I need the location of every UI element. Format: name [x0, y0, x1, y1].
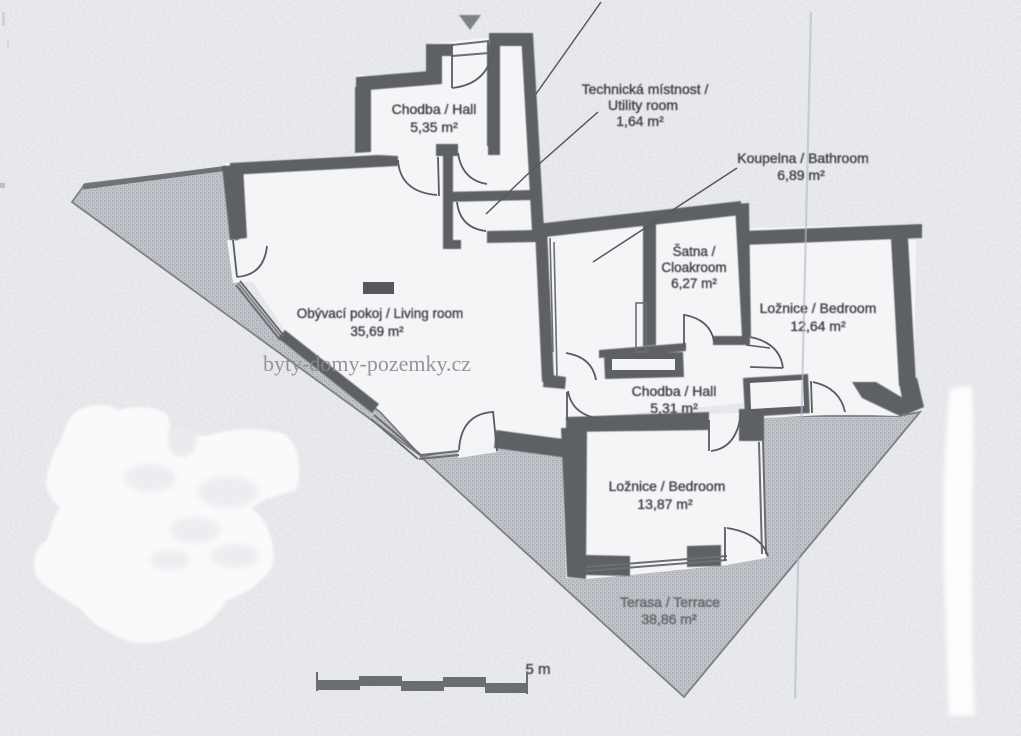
svg-text:5,31 m²: 5,31 m²: [650, 400, 698, 416]
svg-text:5 m: 5 m: [525, 661, 550, 678]
svg-text:Terasa / Terrace: Terasa / Terrace: [620, 594, 720, 610]
svg-text:13,87 m²: 13,87 m²: [637, 496, 693, 512]
svg-text:35,69 m²: 35,69 m²: [350, 324, 404, 339]
svg-text:6,27 m²: 6,27 m²: [671, 276, 717, 291]
svg-text:Cloakroom: Cloakroom: [661, 260, 726, 275]
svg-text:Ložnice / Bedroom: Ložnice / Bedroom: [760, 300, 877, 316]
svg-text:Ložnice / Bedroom: Ložnice / Bedroom: [609, 478, 726, 494]
svg-text:byty-domy-pozemky.cz: byty-domy-pozemky.cz: [263, 351, 471, 376]
svg-text:38,86 m²: 38,86 m²: [641, 611, 697, 627]
svg-text:12,64 m²: 12,64 m²: [790, 318, 846, 334]
svg-text:Koupelna / Bathroom: Koupelna / Bathroom: [737, 150, 869, 166]
svg-text:Obývací pokoj / Living room: Obývací pokoj / Living room: [297, 306, 464, 321]
svg-text:Technická místnost /: Technická místnost /: [582, 81, 709, 97]
svg-text:1,64 m²: 1,64 m²: [616, 113, 664, 129]
svg-text:Šatna /: Šatna /: [673, 244, 716, 259]
svg-text:Chodba / Hall: Chodba / Hall: [632, 383, 717, 399]
svg-text:Chodba / Hall: Chodba / Hall: [392, 101, 477, 117]
svg-text:Utility room: Utility room: [608, 97, 678, 113]
svg-text:6,89 m²: 6,89 m²: [777, 167, 825, 183]
svg-text:5,35 m²: 5,35 m²: [410, 119, 458, 135]
